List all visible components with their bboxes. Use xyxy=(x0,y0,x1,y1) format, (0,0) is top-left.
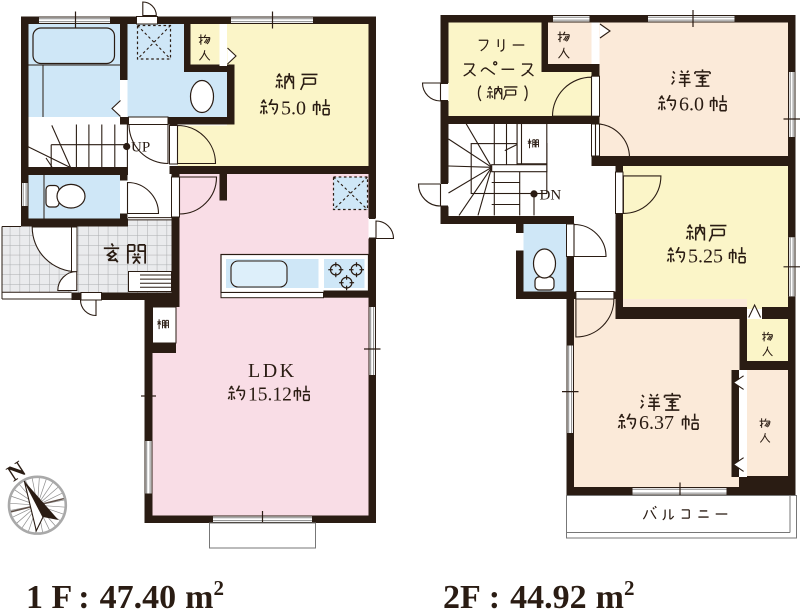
svg-text:15.12: 15.12 xyxy=(248,385,292,406)
svg-text:1 F:47.40m2: 1 F:47.40m2 xyxy=(26,576,224,616)
svg-text:6.0: 6.0 xyxy=(679,94,704,116)
svg-text:5.25: 5.25 xyxy=(688,246,723,268)
svg-text:6.37: 6.37 xyxy=(639,412,674,434)
svg-text:2F:44.92m2: 2F:44.92m2 xyxy=(443,576,634,616)
svg-text:LDK: LDK xyxy=(248,360,297,382)
svg-text:DN: DN xyxy=(540,188,562,204)
svg-text:5.0: 5.0 xyxy=(281,98,306,120)
svg-text:UP: UP xyxy=(131,140,150,156)
